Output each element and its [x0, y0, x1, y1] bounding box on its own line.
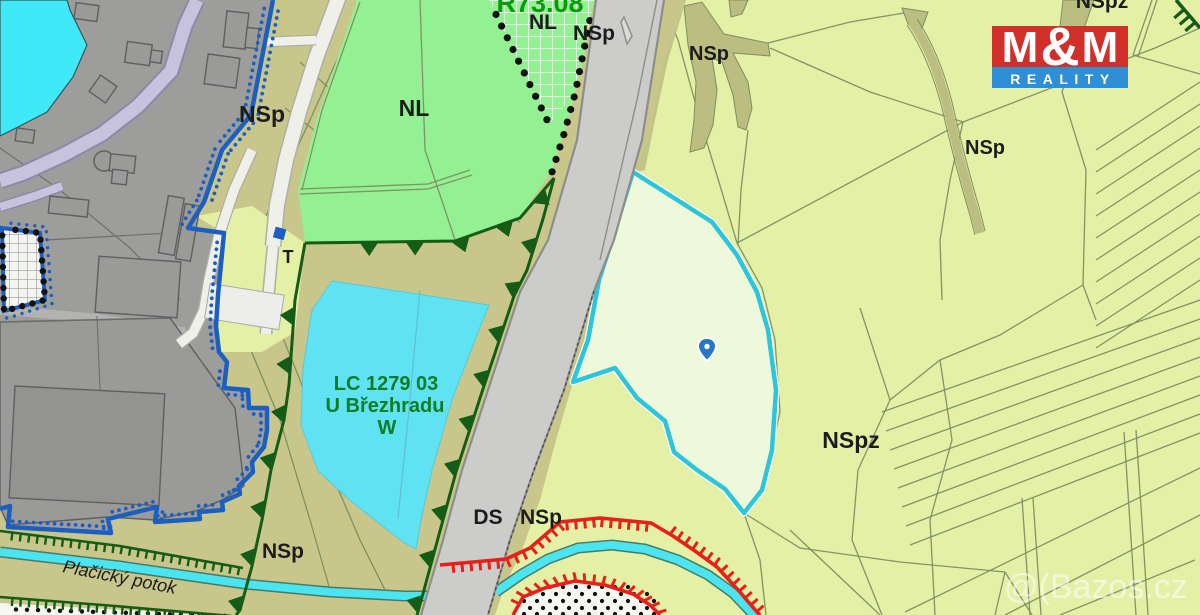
svg-text:LC 1279 03: LC 1279 03	[334, 373, 439, 395]
svg-text:@(Bazos.cz: @(Bazos.cz	[1004, 568, 1188, 606]
svg-text:NSpz: NSpz	[1076, 0, 1129, 13]
svg-text:NSp: NSp	[573, 22, 615, 45]
svg-text:NSp: NSp	[262, 540, 304, 563]
svg-text:NSp: NSp	[239, 101, 285, 127]
svg-text:REALITY: REALITY	[1010, 71, 1115, 87]
svg-text:NSp: NSp	[689, 43, 729, 65]
svg-text:NSpz: NSpz	[822, 427, 880, 453]
svg-text:R73.08: R73.08	[496, 0, 583, 18]
svg-text:NSp: NSp	[520, 506, 562, 529]
svg-text:NL: NL	[399, 95, 430, 121]
svg-text:&: &	[1041, 17, 1080, 77]
svg-text:NSp: NSp	[965, 137, 1005, 159]
svg-text:DS: DS	[473, 506, 502, 529]
svg-text:T: T	[283, 247, 294, 267]
svg-text:M: M	[1082, 23, 1119, 72]
svg-text:U Březhradu: U Březhradu	[326, 395, 445, 417]
svg-text:W: W	[378, 417, 397, 439]
svg-text:M: M	[1002, 23, 1039, 72]
